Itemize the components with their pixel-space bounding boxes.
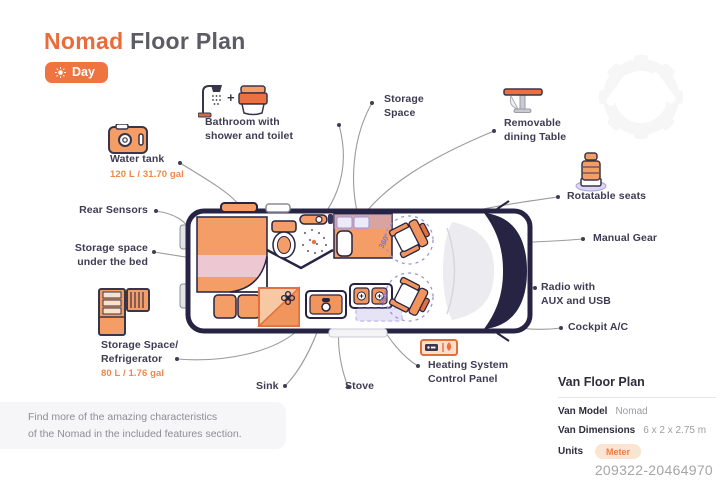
van-info-panel: Van Floor Plan Van Model Nomad Van Dimen… xyxy=(558,375,716,459)
label-radio: Radio with AUX and USB xyxy=(541,281,611,308)
label-cockpit-ac: Cockpit A/C xyxy=(568,321,628,335)
note-box: Find more of the amazing characteristics… xyxy=(0,402,286,449)
label-bathroom: Bathroom with shower and toilet xyxy=(205,116,293,143)
info-panel-heading: Van Floor Plan xyxy=(558,375,716,398)
label-stove: Stove xyxy=(345,380,374,394)
dining-table xyxy=(337,231,352,256)
fridge-capacity: 80 L / 1.76 gal xyxy=(101,368,178,380)
page-title-brand: Nomad xyxy=(44,28,123,54)
stock-id: 209322-20464970 xyxy=(595,462,713,478)
roof-water-tank xyxy=(221,203,257,212)
label-storage-space: Storage Space xyxy=(384,93,424,120)
note-line2: of the Nomad in the included features se… xyxy=(28,426,286,442)
info-row-units: Units Meter xyxy=(558,444,716,459)
label-heating: Heating System Control Panel xyxy=(428,359,508,386)
day-mode-toggle[interactable]: Day xyxy=(45,62,108,83)
under-bed-storage-band xyxy=(197,255,267,277)
toilet-icon xyxy=(238,85,268,116)
rotatable-seat-icon xyxy=(574,150,608,192)
unit-meter-badge[interactable]: Meter xyxy=(595,444,641,459)
info-row-model: Van Model Nomad xyxy=(558,406,716,417)
dining-table-icon xyxy=(503,84,545,114)
van-body: 360° 360° xyxy=(180,201,530,341)
label-removable-table: Removable dining Table xyxy=(504,117,566,144)
roof-vent xyxy=(266,204,290,212)
sun-icon xyxy=(55,67,66,78)
info-row-dimensions: Van Dimensions 6 x 2 x 2.75 m xyxy=(558,425,716,436)
floor-plan-page: 360° 360° Nomad xyxy=(0,0,720,480)
heating-panel-icon xyxy=(420,339,458,356)
label-manual-gear: Manual Gear xyxy=(593,232,657,246)
bathroom-sink xyxy=(300,215,327,224)
page-title-rest: Floor Plan xyxy=(130,28,245,54)
water-tank-capacity: 120 L / 31.70 gal xyxy=(110,169,184,181)
plus-glyph: + xyxy=(227,90,235,105)
label-rotatable-seats: Rotatable seats xyxy=(567,190,646,204)
shower-icon xyxy=(198,82,226,118)
label-rear-sensors: Rear Sensors xyxy=(79,204,148,218)
label-fridge: Storage Space/ Refrigerator 80 L / 1.76 … xyxy=(101,339,178,381)
heating-panel-location xyxy=(356,308,402,321)
refrigerator-icon xyxy=(98,287,152,337)
water-tank-icon xyxy=(108,124,150,154)
page-title: Nomad Floor Plan xyxy=(44,28,246,55)
note-line1: Find more of the amazing characteristics xyxy=(28,409,286,425)
label-under-bed-storage: Storage space under the bed xyxy=(75,242,148,269)
label-sink: Sink xyxy=(256,380,279,394)
day-mode-label: Day xyxy=(72,65,95,79)
label-water-tank: Water tank 120 L / 31.70 gal xyxy=(110,153,184,181)
side-step xyxy=(329,329,387,337)
